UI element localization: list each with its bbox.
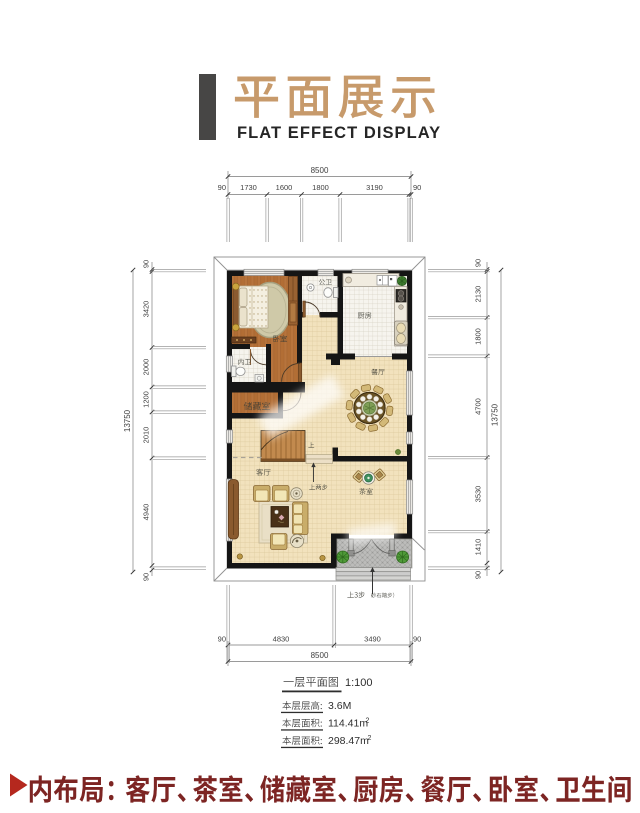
svg-text:90: 90 <box>142 260 151 268</box>
svg-text:2: 2 <box>368 735 372 742</box>
svg-text:1600: 1600 <box>276 183 293 192</box>
svg-text:1800: 1800 <box>312 183 329 192</box>
svg-text:3490: 3490 <box>364 635 381 644</box>
svg-text:1410: 1410 <box>474 539 483 556</box>
svg-text:298.47m: 298.47m <box>328 735 369 747</box>
svg-text:114.41m: 114.41m <box>328 718 368 730</box>
svg-text:3530: 3530 <box>474 486 483 503</box>
svg-text:13750: 13750 <box>491 403 500 426</box>
svg-text:2010: 2010 <box>142 427 151 444</box>
svg-text:4700: 4700 <box>474 398 483 415</box>
svg-text:90: 90 <box>474 259 483 267</box>
svg-text:90: 90 <box>218 635 226 644</box>
svg-text:90: 90 <box>142 573 151 581</box>
svg-text:2130: 2130 <box>474 286 483 303</box>
svg-text:8500: 8500 <box>311 166 329 175</box>
svg-text:1730: 1730 <box>240 183 257 192</box>
svg-text:4940: 4940 <box>142 504 151 521</box>
svg-text:8500: 8500 <box>311 651 329 660</box>
svg-text:90: 90 <box>413 183 421 192</box>
svg-text:1800: 1800 <box>474 328 483 345</box>
svg-text:3190: 3190 <box>366 183 383 192</box>
svg-text:3.6M: 3.6M <box>328 700 351 712</box>
svg-text:1:100: 1:100 <box>345 677 373 689</box>
svg-text:90: 90 <box>218 183 226 192</box>
svg-text:FLAT EFFECT DISPLAY: FLAT EFFECT DISPLAY <box>237 124 441 142</box>
svg-text:3420: 3420 <box>142 301 151 318</box>
svg-text:2000: 2000 <box>142 359 151 376</box>
svg-text:1200: 1200 <box>142 391 151 408</box>
svg-text:90: 90 <box>413 635 421 644</box>
svg-text:4830: 4830 <box>273 635 290 644</box>
svg-text:13750: 13750 <box>123 409 132 432</box>
svg-text:90: 90 <box>474 571 483 579</box>
svg-text:2: 2 <box>366 718 370 725</box>
